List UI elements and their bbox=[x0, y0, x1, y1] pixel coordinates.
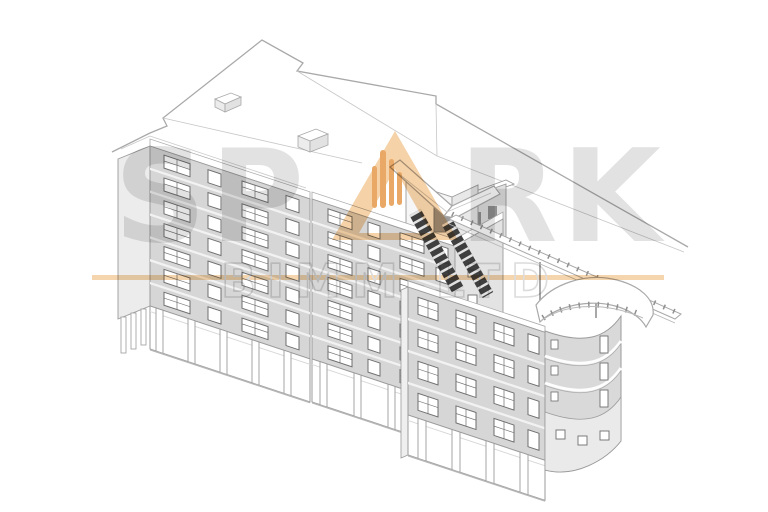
watermark-overlay: SP RK BIMM LTD bbox=[0, 0, 768, 512]
watermark-subtitle: BIMM LTD bbox=[221, 254, 560, 308]
watermark-logo-a bbox=[332, 131, 458, 240]
architectural-model-view: SP RK BIMM LTD bbox=[0, 0, 768, 512]
watermark-brand-right: RK bbox=[459, 123, 666, 272]
watermark-brand-left: SP bbox=[114, 123, 308, 272]
logo-a-triangle bbox=[332, 131, 458, 240]
